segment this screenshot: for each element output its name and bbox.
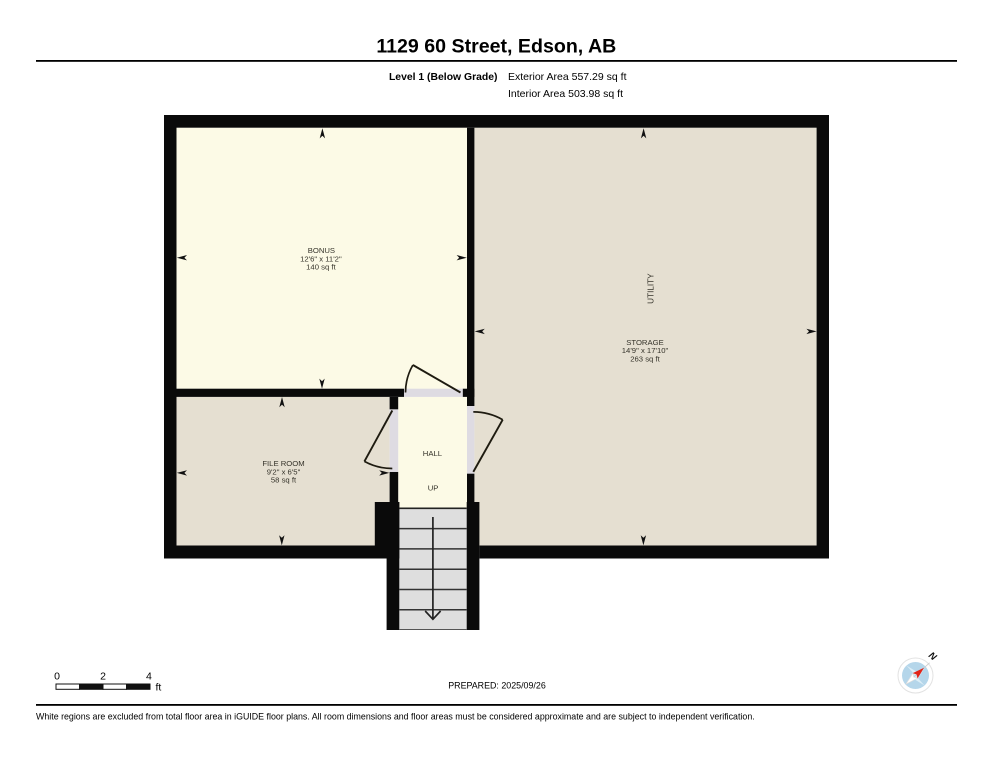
svg-text:Interior Area 503.98 sq ft: Interior Area 503.98 sq ft (508, 88, 623, 100)
svg-text:PREPARED: 2025/09/26: PREPARED: 2025/09/26 (448, 680, 546, 690)
svg-text:Level 1 (Below Grade): Level 1 (Below Grade) (389, 72, 498, 83)
svg-text:ft: ft (156, 682, 162, 694)
svg-text:HALL: HALL (423, 449, 443, 458)
svg-text:White regions are excluded fro: White regions are excluded from total fl… (36, 712, 755, 722)
svg-text:58 sq ft: 58 sq ft (271, 476, 297, 485)
svg-text:140 sq ft: 140 sq ft (306, 263, 336, 272)
svg-text:UP: UP (428, 484, 439, 493)
svg-text:1129 60 Street, Edson, AB: 1129 60 Street, Edson, AB (376, 36, 616, 58)
svg-text:4: 4 (146, 671, 152, 683)
svg-text:0: 0 (54, 671, 60, 683)
svg-text:263 sq ft: 263 sq ft (630, 354, 660, 363)
svg-text:2: 2 (100, 671, 106, 683)
svg-text:Exterior Area 557.29 sq ft: Exterior Area 557.29 sq ft (508, 71, 627, 83)
svg-text:UTILITY: UTILITY (646, 273, 655, 304)
